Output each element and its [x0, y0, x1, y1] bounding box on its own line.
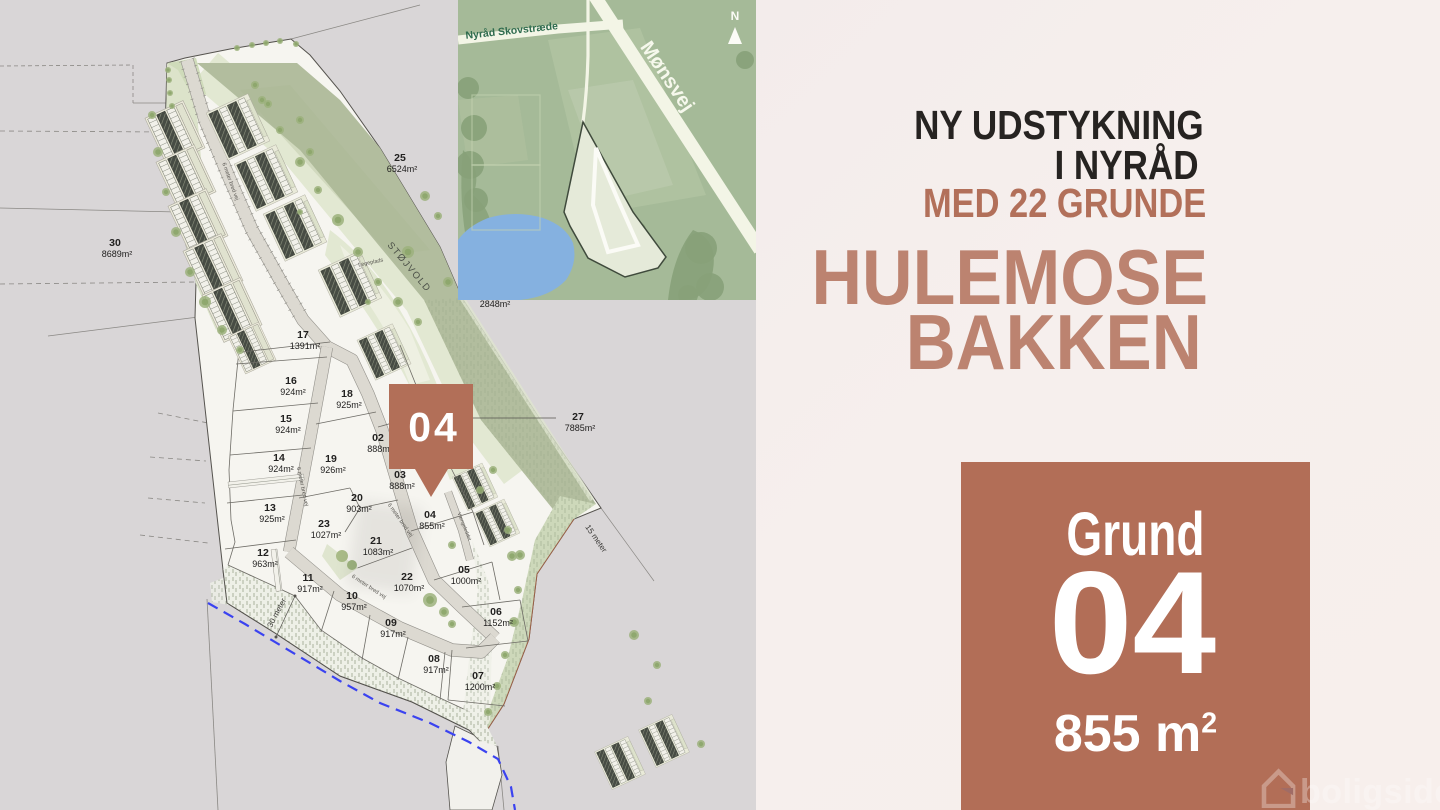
svg-text:1000m²: 1000m²	[451, 576, 482, 586]
svg-text:03: 03	[394, 469, 406, 481]
svg-text:1391m²: 1391m²	[290, 341, 321, 351]
svg-text:07: 07	[472, 670, 484, 682]
svg-text:7885m²: 7885m²	[565, 423, 596, 433]
svg-text:30: 30	[109, 237, 121, 249]
svg-text:1152m²: 1152m²	[483, 618, 513, 628]
svg-text:08: 08	[428, 653, 440, 665]
svg-text:6524m²: 6524m²	[387, 164, 418, 174]
svg-text:1027m²: 1027m²	[311, 530, 342, 540]
svg-text:18: 18	[341, 388, 353, 400]
svg-text:957m²: 957m²	[341, 602, 367, 612]
svg-text:917m²: 917m²	[380, 629, 406, 639]
svg-text:963m²: 963m²	[252, 559, 278, 569]
svg-text:925m²: 925m²	[336, 400, 362, 410]
svg-text:888m²: 888m²	[367, 444, 393, 454]
svg-text:27: 27	[572, 411, 584, 423]
svg-text:22: 22	[401, 571, 413, 583]
svg-text:855m²: 855m²	[419, 521, 445, 531]
svg-text:15: 15	[280, 413, 292, 425]
svg-text:16: 16	[285, 375, 297, 387]
svg-text:23: 23	[318, 518, 330, 530]
svg-text:09: 09	[385, 617, 397, 629]
svg-text:1200m²: 1200m²	[465, 682, 496, 692]
svg-text:21: 21	[370, 535, 382, 547]
svg-text:2848m²: 2848m²	[480, 299, 511, 309]
svg-text:917m²: 917m²	[297, 584, 323, 594]
svg-text:924m²: 924m²	[268, 464, 294, 474]
svg-text:05: 05	[458, 564, 470, 576]
svg-text:903m²: 903m²	[346, 504, 372, 514]
svg-text:924m²: 924m²	[280, 387, 306, 397]
svg-text:20: 20	[351, 492, 363, 504]
svg-text:06: 06	[490, 606, 502, 618]
svg-text:888m²: 888m²	[389, 481, 415, 491]
svg-text:924m²: 924m²	[275, 425, 301, 435]
svg-text:925m²: 925m²	[259, 514, 285, 524]
svg-text:12: 12	[257, 547, 269, 559]
svg-text:04: 04	[424, 509, 436, 521]
svg-text:N: N	[731, 9, 740, 23]
svg-text:25: 25	[394, 152, 406, 164]
svg-text:17: 17	[297, 329, 309, 341]
svg-text:02: 02	[372, 432, 384, 444]
svg-text:04: 04	[408, 404, 460, 450]
svg-text:13: 13	[264, 502, 276, 514]
svg-text:917m²: 917m²	[423, 665, 449, 675]
svg-text:11: 11	[302, 572, 313, 584]
svg-text:1083m²: 1083m²	[363, 547, 394, 557]
svg-text:10: 10	[346, 590, 358, 602]
svg-text:19: 19	[325, 453, 337, 465]
svg-text:1070m²: 1070m²	[394, 583, 425, 593]
svg-text:14: 14	[273, 452, 285, 464]
svg-text:926m²: 926m²	[320, 465, 346, 475]
svg-text:8689m²: 8689m²	[102, 249, 133, 259]
